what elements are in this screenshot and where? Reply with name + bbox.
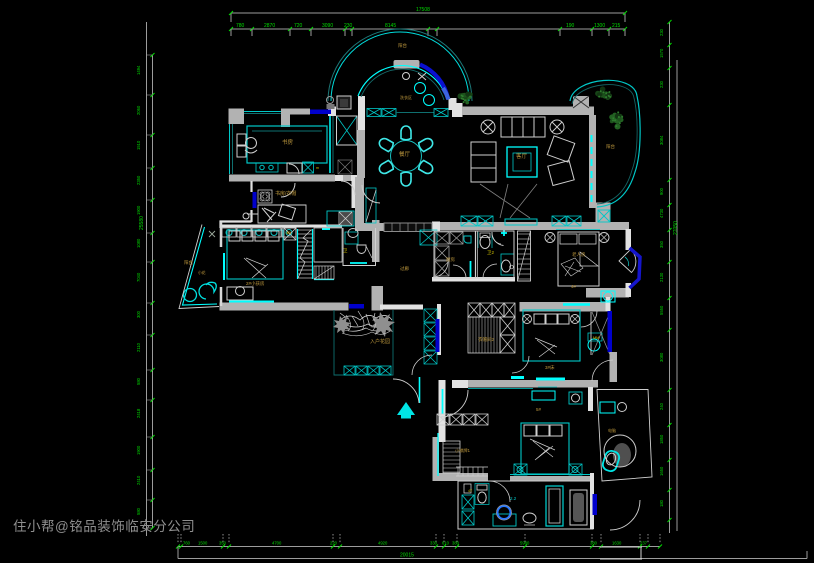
svg-text:客厅: 客厅 [516,152,528,160]
svg-text:2410: 2410 [136,475,141,485]
svg-text:230: 230 [344,23,353,29]
svg-text:220: 220 [330,541,338,546]
svg-text:1510: 1510 [136,140,141,150]
svg-text:厨房: 厨房 [446,256,455,263]
svg-text:过廊: 过廊 [400,265,409,272]
svg-text:阳台: 阳台 [184,259,193,266]
svg-text:580: 580 [136,377,141,385]
svg-text:4920: 4920 [378,541,388,546]
svg-text:900: 900 [659,187,664,195]
svg-text:230: 230 [659,80,664,88]
svg-text:2060: 2060 [136,105,141,115]
svg-text:1630: 1630 [612,541,622,546]
svg-text:300: 300 [136,310,141,318]
svg-text:餐厅: 餐厅 [399,150,411,158]
svg-text:3#床: 3#床 [545,364,555,371]
svg-text:3084: 3084 [659,135,664,145]
svg-text:4700: 4700 [272,541,282,546]
svg-text:1500: 1500 [198,541,208,546]
svg-text:330: 330 [430,541,438,546]
svg-text:2110: 2110 [136,342,141,352]
svg-text:1494: 1494 [136,65,141,75]
svg-text:4#: 4# [571,284,577,289]
svg-text:5980: 5980 [520,541,530,546]
svg-text:阳台: 阳台 [606,143,615,150]
svg-text:5550: 5550 [659,305,664,315]
svg-text:350: 350 [219,541,227,546]
svg-text:小花: 小花 [198,270,206,275]
svg-text:5#: 5# [536,407,542,412]
svg-text:书房: 书房 [282,138,294,146]
svg-text:卫2: 卫2 [487,250,494,255]
svg-text:380: 380 [452,541,460,546]
svg-text:20015: 20015 [400,553,414,559]
svg-text:760: 760 [183,541,191,546]
svg-text:卫: 卫 [343,248,348,253]
svg-text:书房/衣帽: 书房/衣帽 [275,190,296,197]
svg-text:入户花园: 入户花园 [370,338,390,345]
svg-text:580: 580 [136,507,141,515]
svg-text:7040: 7040 [136,272,141,282]
svg-text:3080: 3080 [659,352,664,362]
svg-text:2.2: 2.2 [510,496,517,501]
svg-text:1570: 1570 [659,48,664,58]
svg-text:2#小孩房: 2#小孩房 [246,280,265,287]
svg-text:4730: 4730 [659,208,664,218]
svg-text:4B: 4B [286,230,291,235]
svg-text:1300: 1300 [594,23,605,29]
svg-text:洗衣区: 洗衣区 [400,94,412,100]
svg-text:180: 180 [659,499,664,507]
svg-text:215: 215 [612,23,621,29]
svg-text:230: 230 [659,28,664,36]
svg-text:老人房: 老人房 [572,251,586,258]
svg-text:小棋牌1: 小棋牌1 [455,447,471,454]
svg-text:1900: 1900 [136,445,141,455]
svg-text:17508: 17508 [416,7,430,13]
svg-text:720: 720 [294,23,303,29]
svg-text:1650: 1650 [659,466,664,476]
svg-text:1900: 1900 [136,205,141,215]
svg-text:780: 780 [236,23,245,29]
svg-text:电脑: 电脑 [608,427,616,433]
svg-text:380: 380 [590,541,598,546]
svg-text:240: 240 [659,402,664,410]
svg-text:衣帽间2: 衣帽间2 [478,336,494,343]
svg-text:2130: 2130 [659,272,664,282]
svg-text:MM: MM [593,336,599,340]
svg-text:25580: 25580 [139,216,145,230]
svg-text:2418: 2418 [136,408,141,418]
svg-text:27050: 27050 [673,221,679,235]
svg-text:610: 610 [442,541,450,546]
svg-text:2870: 2870 [264,23,275,29]
svg-text:237: 237 [640,541,648,546]
svg-text:190: 190 [566,23,575,29]
svg-text:m: m [316,166,319,170]
svg-text:1080: 1080 [136,238,141,248]
svg-text:2350: 2350 [136,175,141,185]
svg-text:1850: 1850 [659,434,664,444]
svg-text:350: 350 [659,240,664,248]
svg-text:阳台: 阳台 [398,42,407,49]
svg-text:3090: 3090 [322,23,333,29]
svg-text:8145: 8145 [385,23,396,29]
